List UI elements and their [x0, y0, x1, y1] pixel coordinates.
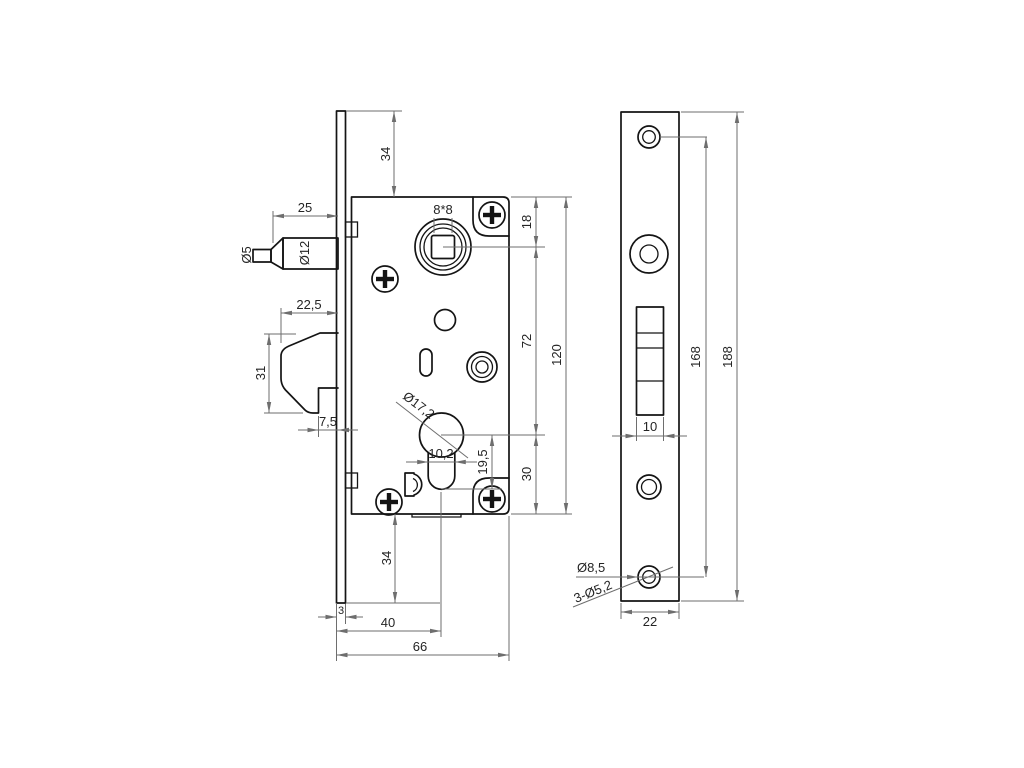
- latch-pin: [253, 238, 338, 269]
- dim-label-spindle-to-cyl: 72: [519, 334, 534, 348]
- screw-bottom-right: [479, 486, 505, 512]
- dim-label-case-depth: 66: [413, 639, 427, 654]
- dim-label-slot-width: 10,2: [428, 446, 453, 461]
- dim-label-spindle-square: 8*8: [433, 202, 453, 217]
- dim-label-bottom-overhang: 34: [379, 551, 394, 565]
- screw-bottom-left: [376, 489, 402, 515]
- front-extension-lines: [573, 112, 744, 619]
- middle-hole: [637, 475, 661, 499]
- dim-label-top-overhang: 34: [378, 147, 393, 161]
- deadbolt: [281, 333, 338, 413]
- dim-label-plate-width: 22: [643, 614, 657, 629]
- faceplate-edge: [337, 111, 346, 603]
- dim-label-plate-length: 188: [720, 346, 735, 368]
- case-hole: [435, 310, 456, 331]
- dim-label-head-dia: Ø8,5: [577, 560, 605, 575]
- dim-label-latch-tip-dia: Ø5: [239, 246, 254, 263]
- oval-slot: [420, 349, 432, 376]
- top-screw-hole: [638, 126, 660, 148]
- dim-label-top-to-spindle: 18: [519, 215, 534, 229]
- dim-label-slot-depth: 19,5: [475, 449, 490, 474]
- spring-clip: [405, 473, 422, 496]
- side-view-dimensions: 34 25 Ø5 Ø12 22,5 31 7,5 8*8 18 72 30 12…: [239, 111, 572, 661]
- dim-label-case-height: 120: [549, 344, 564, 366]
- dim-label-bolt-height: 31: [253, 366, 268, 380]
- dim-label-hole-count: 3-Ø5,2: [572, 577, 614, 606]
- dim-label-cutout-width: 10: [643, 419, 657, 434]
- drawing-canvas: 34 25 Ø5 Ø12 22,5 31 7,5 8*8 18 72 30 12…: [0, 0, 1024, 768]
- dim-label-latch-dia: Ø12: [297, 241, 312, 266]
- dim-label-backset: 40: [381, 615, 395, 630]
- screw-top-right: [479, 202, 505, 228]
- dim-label-latch-length: 25: [298, 200, 312, 215]
- dim-label-plate-thickness: 3: [338, 605, 344, 617]
- faceplate-front-view: [621, 112, 679, 601]
- dim-label-bolt-width: 22,5: [296, 297, 321, 312]
- dim-label-cyl-dia: Ø17,2: [400, 388, 437, 421]
- front-view-dimensions: 168 188 10 22 Ø8,5 3-Ø5,2: [572, 112, 744, 629]
- faceplate-outline: [621, 112, 679, 601]
- screw-upper-left: [372, 266, 398, 292]
- dim-label-bolt-step: 7,5: [319, 414, 337, 429]
- extension-lines: [264, 111, 572, 661]
- mortise-lock-technical-drawing: 34 25 Ø5 Ø12 22,5 31 7,5 8*8 18 72 30 12…: [0, 0, 1024, 768]
- lock-case-side-view: [253, 111, 509, 603]
- spindle-hole-front: [630, 235, 668, 273]
- dim-label-cyl-to-bottom: 30: [519, 467, 534, 481]
- cylinder-fixing-screw-hole: [467, 352, 497, 382]
- latch-cutout: [637, 307, 664, 415]
- dim-label-screw-spacing: 168: [688, 346, 703, 368]
